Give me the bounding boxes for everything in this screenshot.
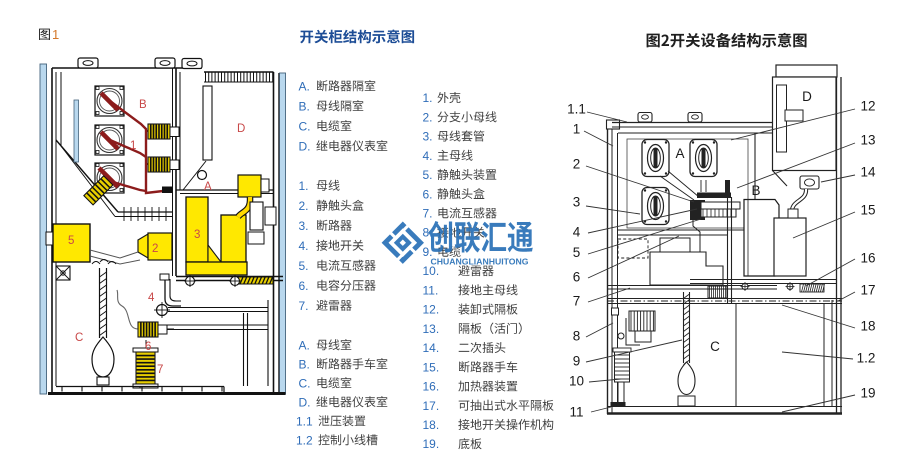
svg-text:2.: 2. (299, 199, 309, 213)
svg-text:3: 3 (573, 195, 581, 210)
svg-text:8: 8 (573, 329, 581, 344)
svg-text:14: 14 (860, 165, 876, 180)
svg-text:D: D (237, 123, 245, 135)
svg-text:6: 6 (573, 270, 581, 285)
svg-text:2: 2 (152, 243, 158, 255)
svg-text:C.: C. (299, 376, 311, 390)
svg-text:3: 3 (194, 229, 200, 241)
svg-text:A: A (675, 146, 684, 161)
svg-text:6.: 6. (423, 187, 433, 201)
svg-text:14.: 14. (423, 341, 440, 355)
svg-text:4.: 4. (423, 149, 433, 163)
svg-text:3.: 3. (299, 219, 309, 233)
svg-text:A.: A. (299, 79, 310, 93)
svg-text:4.: 4. (299, 239, 309, 253)
svg-text:CHUANGLIANHUITONG: CHUANGLIANHUITONG (431, 258, 529, 267)
svg-text:D: D (802, 89, 812, 104)
svg-text:19: 19 (860, 386, 875, 401)
svg-text:5: 5 (68, 235, 74, 247)
svg-text:18.: 18. (423, 418, 440, 432)
svg-text:11: 11 (569, 405, 583, 420)
svg-text:1.2: 1.2 (296, 433, 313, 447)
svg-text:C: C (75, 332, 83, 344)
svg-text:1.1: 1.1 (567, 102, 586, 117)
svg-text:13: 13 (860, 133, 875, 148)
svg-text:2.: 2. (423, 110, 433, 124)
svg-text:19.: 19. (423, 437, 440, 451)
svg-text:1.1: 1.1 (296, 414, 313, 428)
svg-text:10: 10 (569, 374, 584, 389)
svg-text:13.: 13. (423, 322, 440, 336)
svg-text:7: 7 (157, 364, 163, 376)
svg-text:C: C (710, 339, 720, 354)
svg-text:A: A (204, 181, 212, 193)
svg-text:1.: 1. (423, 91, 433, 105)
svg-text:12.: 12. (423, 303, 440, 317)
svg-text:B.: B. (299, 357, 310, 371)
svg-text:1.2: 1.2 (857, 351, 876, 366)
svg-text:7.: 7. (423, 206, 433, 220)
svg-text:7: 7 (573, 294, 581, 309)
svg-text:4: 4 (573, 225, 581, 240)
svg-text:15: 15 (860, 203, 875, 218)
svg-text:5: 5 (573, 245, 581, 260)
svg-text:18: 18 (860, 319, 875, 334)
svg-text:1: 1 (130, 140, 136, 152)
svg-text:16.: 16. (423, 380, 440, 394)
svg-text:1: 1 (573, 122, 581, 137)
svg-text:17.: 17. (423, 399, 440, 413)
svg-text:6: 6 (145, 341, 151, 353)
svg-text:4: 4 (148, 292, 155, 304)
svg-text:16: 16 (860, 251, 875, 266)
svg-text:6.: 6. (299, 279, 309, 293)
svg-text:2: 2 (573, 157, 581, 172)
svg-text:1.: 1. (299, 179, 309, 193)
svg-text:1: 1 (52, 27, 59, 42)
svg-text:B: B (139, 99, 147, 111)
svg-text:C.: C. (299, 119, 311, 133)
svg-text:B.: B. (299, 99, 310, 113)
svg-text:A.: A. (299, 338, 310, 352)
svg-text:5.: 5. (299, 259, 309, 273)
svg-text:15.: 15. (423, 360, 440, 374)
svg-text:D.: D. (299, 395, 311, 409)
svg-text:9: 9 (573, 354, 581, 369)
svg-text:12: 12 (860, 99, 875, 114)
svg-text:11.: 11. (423, 283, 439, 297)
svg-text:3.: 3. (423, 130, 433, 144)
svg-text:5.: 5. (423, 168, 433, 182)
svg-text:D.: D. (299, 139, 311, 153)
svg-text:B: B (751, 183, 760, 198)
svg-text:17: 17 (860, 283, 875, 298)
svg-text:7.: 7. (299, 299, 309, 313)
